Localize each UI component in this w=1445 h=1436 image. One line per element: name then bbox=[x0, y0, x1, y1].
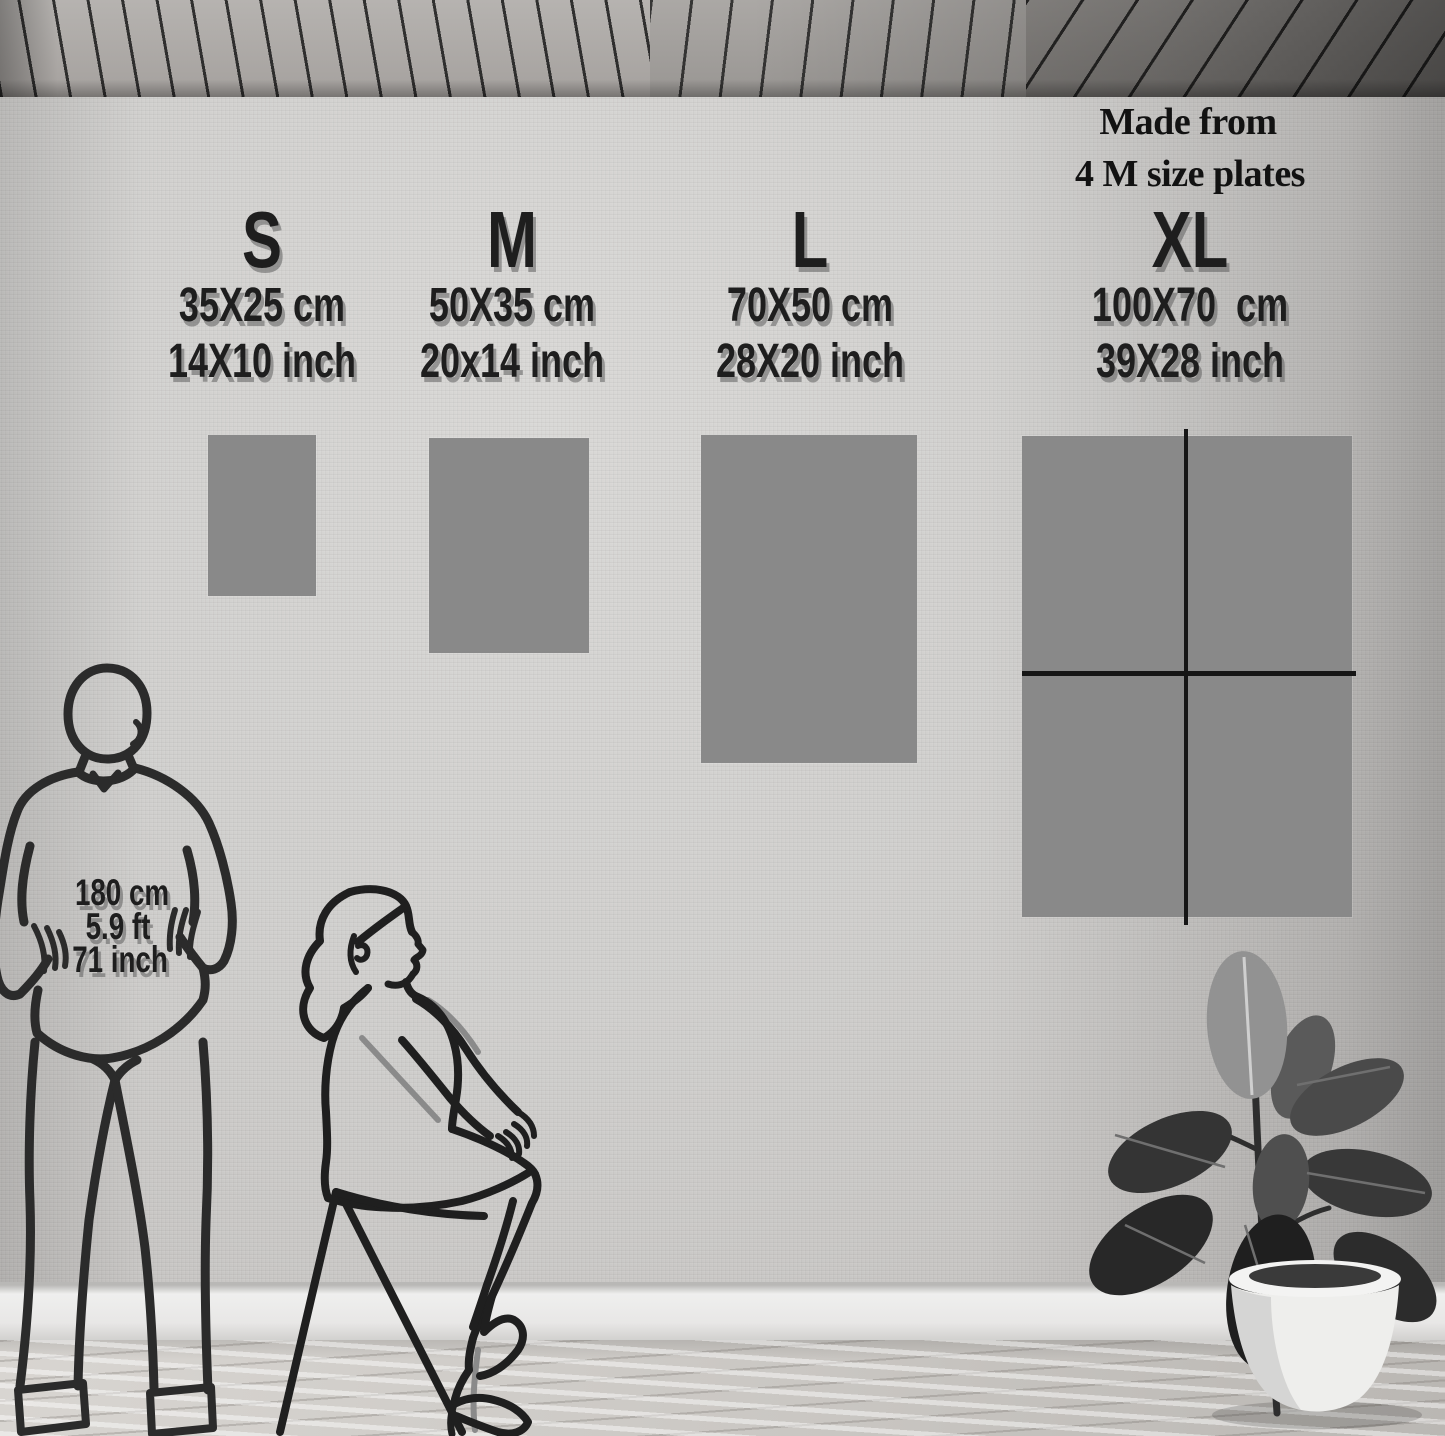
size-label-l: L bbox=[792, 200, 829, 280]
size-inch-l: 28X20 inch bbox=[716, 338, 904, 386]
standing-man-line-art bbox=[0, 660, 270, 1436]
xl-note-line2: 4 M size plates bbox=[1075, 155, 1305, 193]
size-label-s: S bbox=[242, 200, 282, 280]
size-guide-scene: Made from 4 M size plates S M L XL 35X25… bbox=[0, 0, 1445, 1436]
person-height-inch: 71 inch bbox=[72, 941, 168, 978]
xl-plate-divider-vertical bbox=[1184, 429, 1188, 925]
size-inch-xl: 39X28 inch bbox=[1096, 338, 1284, 386]
xl-plate-divider-horizontal bbox=[1022, 671, 1356, 676]
size-inch-m: 20x14 inch bbox=[420, 338, 604, 386]
size-swatch-m bbox=[429, 438, 589, 653]
potted-rubber-plant bbox=[1085, 945, 1445, 1436]
wood-slat-ceiling bbox=[0, 0, 1445, 97]
size-cm-l: 70X50 cm bbox=[727, 282, 893, 330]
size-cm-m: 50X35 cm bbox=[429, 282, 595, 330]
size-cm-xl: 100X70 cm bbox=[1092, 282, 1288, 330]
size-cm-s: 35X25 cm bbox=[179, 282, 345, 330]
size-swatch-s bbox=[208, 435, 316, 596]
size-label-m: M bbox=[487, 200, 537, 280]
ceiling-shading bbox=[0, 0, 1445, 97]
xl-note-line1: Made from bbox=[1099, 103, 1276, 141]
size-label-xl: XL bbox=[1152, 200, 1229, 280]
size-inch-s: 14X10 inch bbox=[168, 338, 356, 386]
size-swatch-l bbox=[701, 435, 917, 763]
sitting-woman-line-art bbox=[266, 880, 606, 1436]
